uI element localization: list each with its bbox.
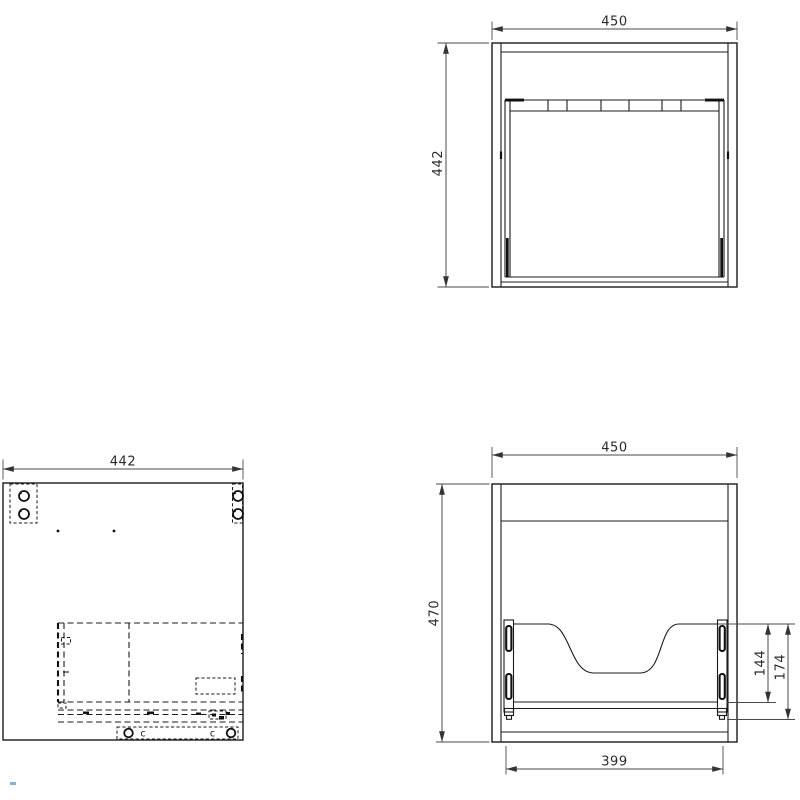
back-carcass-panels [501,484,728,742]
side-dowel-dots [57,530,116,533]
front-cabinet-outline [492,43,737,287]
dim-label-front-width: 450 [601,15,628,30]
front-view: 450 442 [431,15,737,288]
front-width-dimension: 450 [492,15,737,41]
side-hidden-drawer-outline [58,623,243,702]
side-hidden-runner-lines [58,703,243,722]
side-mounting-strip: c c [117,727,238,740]
dim-label-side-width: 442 [110,455,137,470]
front-drawer-cavity [500,99,729,278]
back-view: 450 470 399 144 174 [428,441,796,775]
front-height-dimension: 442 [431,43,489,287]
page-corner-mark [10,782,16,785]
back-bottom-bar [514,702,718,709]
back-rail-dimensions: 144 174 [718,624,796,720]
dim-label-back-opening-width: 399 [601,755,628,770]
front-carcass-panels [501,43,728,287]
technical-drawing-canvas: 450 442 [0,0,800,800]
side-hidden-handle-cutout [196,678,235,694]
back-opening-width-dimension: 399 [506,746,723,775]
dim-label-back-width: 450 [601,441,628,456]
drawing-sheet: 450 442 [0,0,800,800]
side-view: c c 442 [3,455,243,741]
dim-label-back-height: 470 [428,600,443,627]
cam-letter-left: c [140,729,145,740]
dim-label-front-height: 442 [431,150,446,177]
dim-label-back-rail-height: 144 [754,650,769,677]
cam-letter-right: c [210,729,215,740]
front-bracket-marks [500,99,729,278]
side-cam-lock-right [233,484,244,523]
back-width-dimension: 450 [492,441,737,479]
side-panel-outline [3,483,243,740]
side-cam-lock-left [10,484,37,523]
side-width-dimension: 442 [3,455,243,480]
dim-label-back-rail-total-height: 174 [774,654,789,681]
back-rail-right [718,620,728,719]
back-cabinet-outline [492,484,737,742]
back-rail-left [504,620,514,719]
back-panel-cutout-curve [513,624,718,673]
back-height-dimension: 470 [428,484,490,742]
front-rail-segments [548,100,681,111]
